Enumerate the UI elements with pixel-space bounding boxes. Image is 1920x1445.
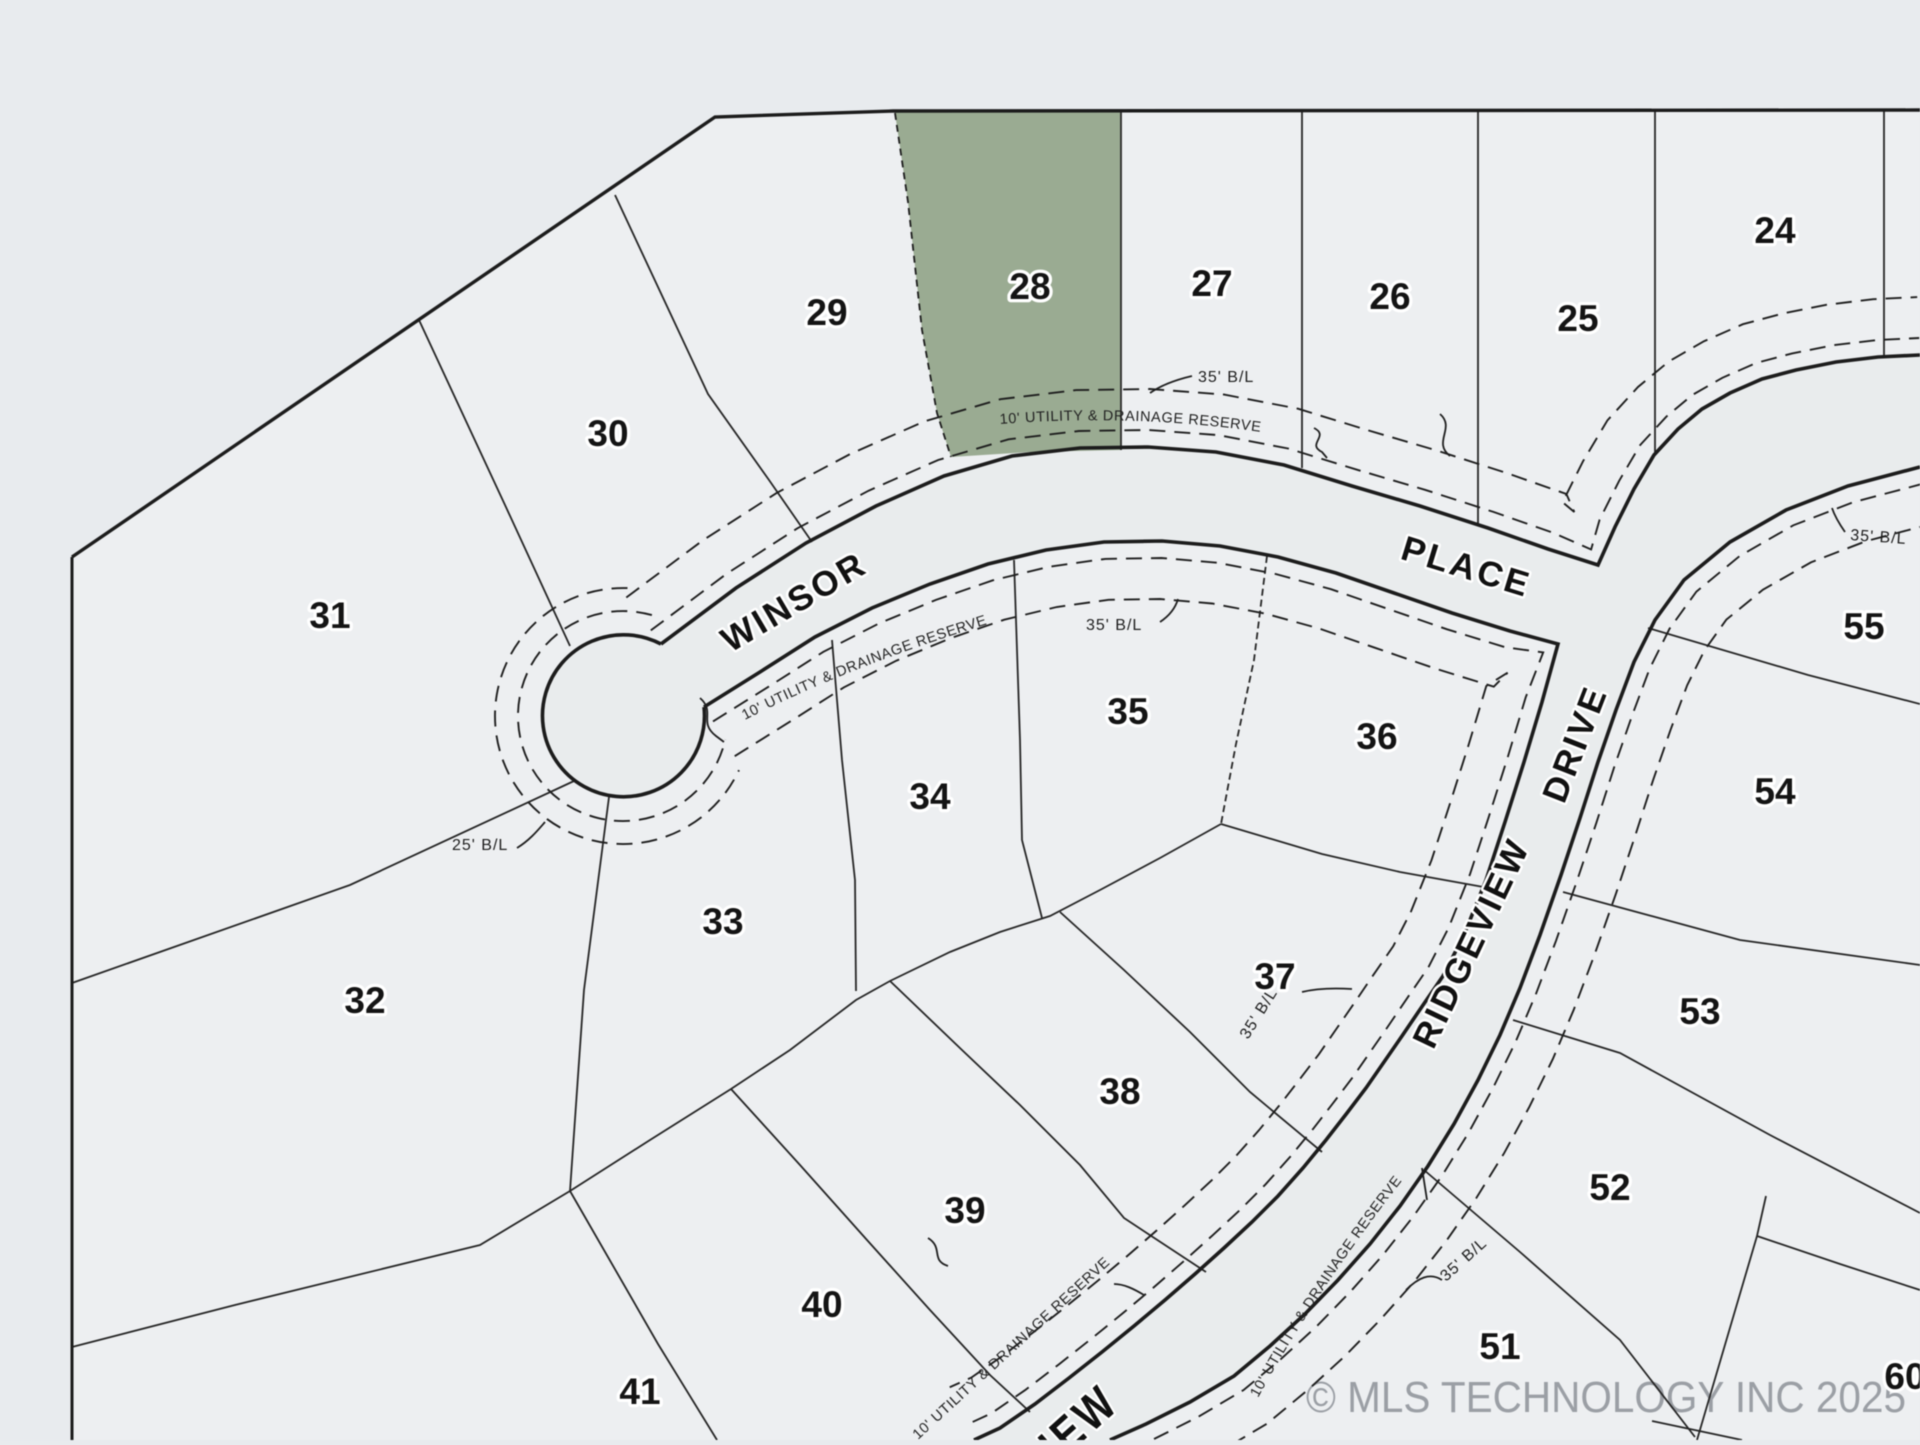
svg-text:52: 52	[1589, 1167, 1630, 1208]
svg-text:28: 28	[1009, 266, 1050, 307]
svg-text:36: 36	[1356, 716, 1397, 757]
svg-text:29: 29	[806, 292, 847, 333]
svg-text:40: 40	[801, 1284, 842, 1325]
svg-text:34: 34	[909, 776, 951, 817]
svg-text:24: 24	[1754, 210, 1796, 251]
svg-text:39: 39	[944, 1190, 985, 1231]
svg-text:30: 30	[587, 413, 628, 454]
svg-text:35' B/L: 35' B/L	[1086, 617, 1142, 634]
svg-text:© MLS TECHNOLOGY INC 2025: © MLS TECHNOLOGY INC 2025	[1306, 1373, 1906, 1422]
svg-text:25' B/L: 25' B/L	[452, 837, 508, 854]
svg-text:33: 33	[702, 901, 743, 942]
svg-text:38: 38	[1099, 1071, 1140, 1112]
svg-text:41: 41	[619, 1371, 660, 1412]
svg-text:25: 25	[1557, 298, 1598, 339]
svg-text:53: 53	[1679, 991, 1720, 1032]
svg-text:31: 31	[309, 595, 350, 636]
svg-text:51: 51	[1479, 1326, 1520, 1367]
svg-text:35: 35	[1107, 691, 1148, 732]
svg-text:55: 55	[1843, 606, 1884, 647]
svg-text:60: 60	[1884, 1356, 1920, 1397]
svg-text:32: 32	[344, 980, 385, 1021]
svg-text:27: 27	[1191, 263, 1232, 304]
svg-text:54: 54	[1754, 771, 1796, 812]
svg-text:26: 26	[1369, 276, 1410, 317]
svg-text:35' B/L: 35' B/L	[1198, 369, 1254, 386]
